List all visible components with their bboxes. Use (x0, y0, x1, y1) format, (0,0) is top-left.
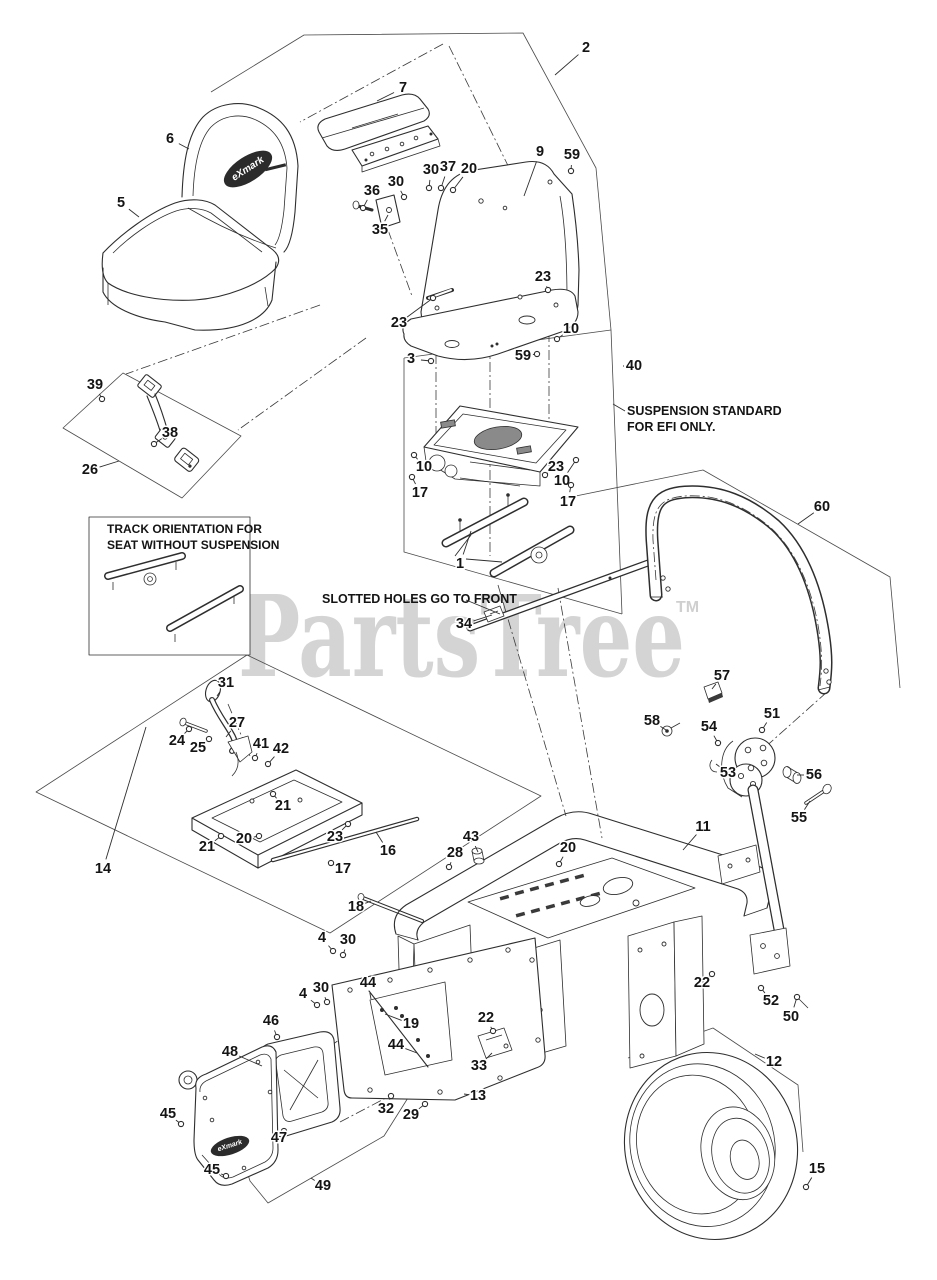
exmark-logo-seat: eXmark (219, 140, 286, 198)
svg-text:17: 17 (560, 494, 576, 510)
clip-part-53 (710, 760, 717, 772)
svg-text:22: 22 (478, 1010, 494, 1026)
track-box-title-line1: TRACK ORIENTATION FOR (107, 522, 262, 536)
part-callout-53: 53 (716, 764, 736, 781)
svg-text:56: 56 (806, 767, 822, 783)
svg-text:44: 44 (360, 975, 376, 991)
svg-text:30: 30 (313, 980, 329, 996)
part-callout-10: 10 (411, 452, 432, 475)
svg-text:42: 42 (273, 741, 289, 757)
watermark-tm: TM (676, 599, 699, 616)
svg-text:27: 27 (229, 715, 245, 731)
part-callout-4: 4 (318, 930, 336, 954)
part-callout-14: 14 (95, 727, 146, 877)
svg-text:15: 15 (809, 1161, 825, 1177)
svg-text:4: 4 (299, 986, 307, 1002)
part-callout-40: 40 (623, 358, 642, 374)
exploded-parts-diagram: PartsTree TM (0, 0, 937, 1280)
svg-text:32: 32 (378, 1101, 394, 1117)
part-callout-16: 16 (376, 832, 396, 859)
svg-text:58: 58 (644, 713, 660, 729)
part-callout-5: 5 (117, 195, 139, 217)
svg-text:46: 46 (263, 1013, 279, 1029)
svg-text:12: 12 (766, 1054, 782, 1070)
slotted-holes-note: SLOTTED HOLES GO TO FRONT (322, 592, 517, 606)
part-callout-52: 52 (758, 985, 779, 1009)
svg-text:40: 40 (626, 358, 642, 374)
svg-text:55: 55 (791, 810, 807, 826)
part-callout-57: 57 (712, 668, 730, 689)
part-callout-15: 15 (803, 1161, 825, 1190)
seat-cushion-part-5 (102, 200, 278, 330)
svg-text:30: 30 (423, 162, 439, 178)
part-callout-60: 60 (798, 499, 830, 524)
part-callout-43: 43 (463, 829, 479, 852)
svg-text:23: 23 (535, 269, 551, 285)
svg-text:24: 24 (169, 733, 185, 749)
front-panel-part-13 (332, 938, 545, 1100)
svg-text:60: 60 (814, 499, 830, 515)
part-callout-26: 26 (82, 461, 119, 478)
svg-text:1: 1 (456, 556, 464, 572)
part-callout-22: 22 (694, 971, 715, 991)
svg-text:7: 7 (399, 80, 407, 96)
svg-text:22: 22 (694, 975, 710, 991)
svg-text:23: 23 (391, 315, 407, 331)
svg-text:48: 48 (222, 1044, 238, 1060)
svg-text:19: 19 (403, 1016, 419, 1032)
svg-text:30: 30 (340, 932, 356, 948)
armrest-part-7 (318, 94, 440, 172)
part-callout-50: 50 (783, 994, 800, 1025)
part-callout-30: 30 (313, 980, 330, 1005)
part-callout-28: 28 (446, 845, 463, 870)
part-callout-6: 6 (166, 131, 189, 149)
svg-text:23: 23 (327, 829, 343, 845)
svg-text:5: 5 (117, 195, 125, 211)
part-callout-58: 58 (644, 713, 666, 730)
part-callout-29: 29 (403, 1101, 428, 1123)
svg-text:3: 3 (407, 351, 415, 367)
part-callout-41: 41 (252, 736, 269, 761)
part-callout-25: 25 (190, 736, 212, 756)
part-callout-27: 27 (226, 715, 245, 737)
part-callout-49: 49 (311, 1178, 331, 1194)
seat-back-part-6: eXmark (182, 104, 298, 252)
svg-text:47: 47 (271, 1130, 287, 1146)
svg-text:16: 16 (380, 843, 396, 859)
svg-text:11: 11 (695, 819, 710, 835)
svg-text:59: 59 (564, 147, 580, 163)
svg-text:13: 13 (470, 1088, 486, 1104)
part-callout-59: 59 (564, 147, 580, 174)
svg-text:26: 26 (82, 462, 98, 478)
svg-text:28: 28 (447, 845, 463, 861)
svg-text:37: 37 (440, 159, 456, 175)
svg-text:52: 52 (763, 993, 779, 1009)
svg-text:17: 17 (335, 861, 351, 877)
svg-text:45: 45 (160, 1106, 176, 1122)
svg-text:14: 14 (95, 861, 111, 877)
part-callout-31: 31 (217, 675, 234, 696)
svg-text:10: 10 (554, 473, 570, 489)
svg-text:29: 29 (403, 1107, 419, 1123)
part-callout-24: 24 (169, 726, 192, 749)
part-callout-45: 45 (160, 1106, 184, 1127)
part-callout-47: 47 (271, 1128, 287, 1146)
svg-text:39: 39 (87, 377, 103, 393)
svg-text:38: 38 (162, 425, 178, 441)
svg-text:30: 30 (388, 174, 404, 190)
part-callout-55: 55 (791, 801, 810, 826)
parts-diagram-page: PartsTree TM (0, 0, 937, 1280)
svg-text:18: 18 (348, 899, 364, 915)
svg-text:45: 45 (204, 1162, 220, 1178)
part-callout-20: 20 (556, 840, 576, 867)
part-callout-12: 12 (755, 1054, 782, 1070)
svg-text:51: 51 (764, 706, 780, 722)
part-callout-23: 23 (327, 821, 351, 845)
svg-text:53: 53 (720, 765, 736, 781)
seat-belt-parts (137, 374, 200, 473)
suspension-note-line1: SUSPENSION STANDARD (627, 404, 782, 418)
rod-part-18 (358, 894, 422, 922)
svg-text:4: 4 (318, 930, 326, 946)
svg-text:31: 31 (218, 675, 234, 691)
svg-text:20: 20 (461, 161, 477, 177)
part-callout-54: 54 (701, 719, 721, 746)
part-callout-30: 30 (423, 162, 439, 191)
svg-text:33: 33 (471, 1058, 487, 1074)
part-callout-30: 30 (340, 932, 356, 958)
part-callout-46: 46 (263, 1013, 280, 1040)
svg-text:54: 54 (701, 719, 717, 735)
track-box-title-line2: SEAT WITHOUT SUSPENSION (107, 538, 279, 552)
suspension-note-line2: FOR EFI ONLY. (627, 420, 715, 434)
part-callout-2: 2 (555, 40, 590, 75)
seat-support-plate (192, 770, 362, 868)
seat-tracks-part-1 (446, 493, 570, 573)
svg-text:2: 2 (582, 40, 590, 56)
part-callout-17: 17 (409, 474, 428, 501)
rollbar-hinge-parts (662, 682, 833, 803)
svg-text:35: 35 (372, 222, 388, 238)
svg-text:25: 25 (190, 740, 206, 756)
svg-text:49: 49 (315, 1178, 331, 1194)
svg-text:21: 21 (199, 839, 215, 855)
part-callout-59: 59 (515, 348, 540, 364)
svg-text:44: 44 (388, 1037, 404, 1053)
svg-text:59: 59 (515, 348, 531, 364)
svg-text:36: 36 (364, 183, 380, 199)
bolt-part-55 (806, 783, 833, 803)
svg-text:10: 10 (416, 459, 432, 475)
svg-text:6: 6 (166, 131, 174, 147)
svg-text:17: 17 (412, 485, 428, 501)
svg-text:57: 57 (714, 668, 730, 684)
svg-text:20: 20 (560, 840, 576, 856)
svg-text:9: 9 (536, 144, 544, 160)
part-callout-11: 11 (683, 819, 711, 850)
svg-text:10: 10 (563, 321, 579, 337)
svg-text:43: 43 (463, 829, 479, 845)
svg-text:50: 50 (783, 1009, 799, 1025)
svg-text:21: 21 (275, 798, 291, 814)
part-callout-17: 17 (328, 860, 351, 877)
svg-text:20: 20 (236, 831, 252, 847)
part-callout-51: 51 (759, 706, 780, 733)
svg-text:34: 34 (456, 616, 472, 632)
svg-text:41: 41 (253, 736, 269, 752)
